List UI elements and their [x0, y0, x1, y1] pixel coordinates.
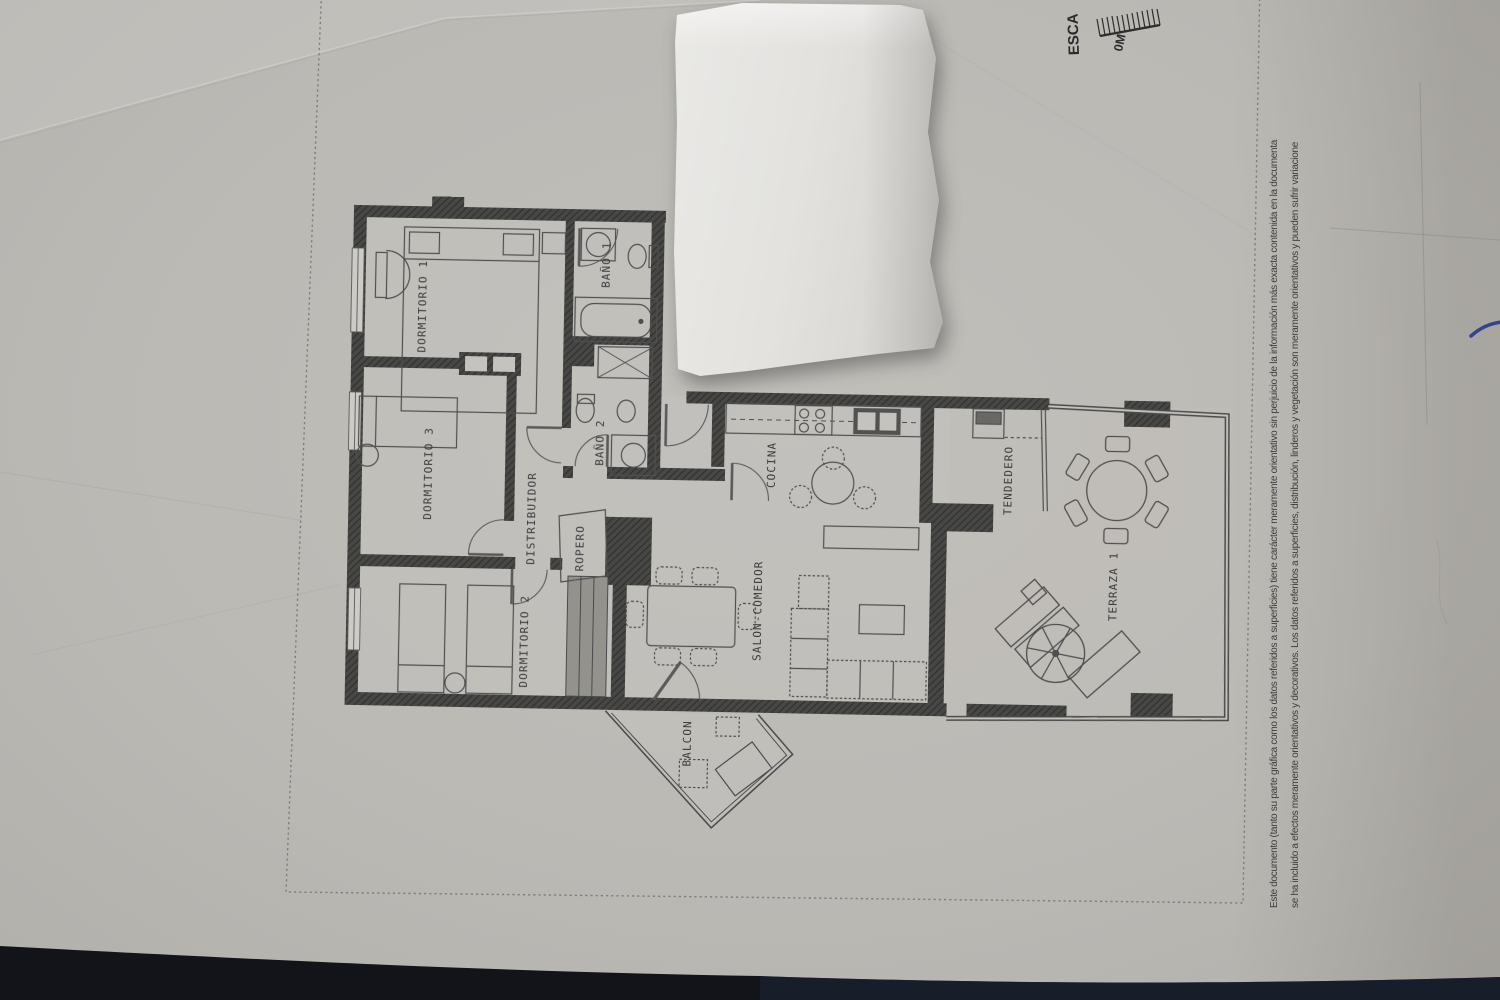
scale-title: ESCA — [1065, 13, 1083, 55]
room-label-cocina: COCINA — [765, 442, 779, 489]
underlying-sheet-edge — [0, 0, 762, 143]
room-label-ropero: ROPERO — [573, 525, 587, 572]
room-label-balcon: BALCON — [680, 720, 694, 767]
room-label-salon-comedor: SALON-COMEDOR — [750, 560, 765, 661]
scale-zero-label: 0M — [1111, 33, 1128, 53]
disclaimer-line-1: Este documento (tanto su parte gráfica c… — [1264, 0, 1285, 908]
room-label-dormitorio-1: DORMITORIO 1 — [415, 260, 430, 353]
room-label-tendedero: TENDEDERO — [1001, 446, 1015, 516]
room-label-terraza-1: TERRAZA 1 — [1106, 552, 1120, 622]
built-in-wardrobe — [566, 576, 608, 697]
disclaimer-line-2: se ha incluido a efectos meramente orien… — [1285, 0, 1306, 908]
pencil-marks — [1330, 82, 1500, 625]
torn-paper-shading — [668, 0, 954, 386]
room-label-bano-2: BAÑO 2 — [593, 419, 607, 466]
photo-of-floor-plan-document: ESCA 0M — [0, 0, 1500, 1000]
closet-slit — [493, 357, 515, 372]
scale-bar — [1097, 9, 1160, 36]
pen-mark — [1471, 322, 1500, 336]
room-label-dormitorio-3: DORMITORIO 3 — [421, 427, 436, 520]
dark-surface — [0, 946, 1500, 1000]
disclaimer-text: Este documento (tanto su parte gráfica c… — [1264, 0, 1306, 908]
room-label-bano-1: BAÑO 1 — [600, 241, 614, 288]
torn-paper-shape — [668, 0, 954, 386]
room-label-distribuidor: DISTRIBUIDOR — [524, 472, 539, 565]
room-label-dormitorio-2: DORMITORIO 2 — [517, 595, 532, 688]
torn-paper-piece — [668, 0, 954, 386]
closet-slit — [465, 356, 487, 371]
